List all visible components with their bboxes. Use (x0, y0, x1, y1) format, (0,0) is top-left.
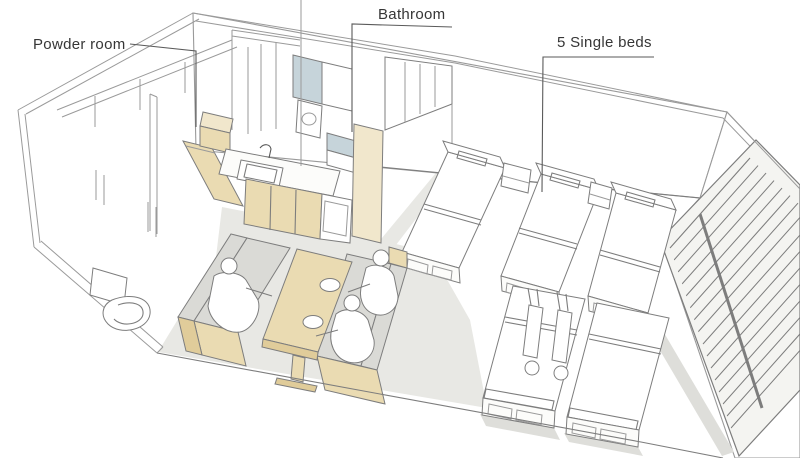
bed-5 (566, 303, 669, 447)
label-single-beds: 5 Single beds (557, 34, 652, 51)
plate (303, 316, 323, 329)
bathroom-partition (322, 62, 352, 111)
entry-door-jambs (96, 170, 156, 237)
person-right-top-head (373, 250, 389, 266)
bed-5-mattress (567, 303, 669, 430)
shower-glass-panel (293, 55, 322, 104)
plate (320, 279, 340, 292)
dining-area (178, 234, 407, 404)
person-right-bottom-head (344, 295, 360, 311)
west-wall-left-edge (18, 110, 40, 247)
bed-2-mattress (501, 174, 599, 292)
west-wall-top-inner (26, 19, 199, 114)
person-lying-2-head (554, 366, 568, 380)
west-wall-top-outer (18, 13, 193, 110)
sketch-svg: Powder room Bathroom 5 Single beds (0, 0, 800, 458)
apartment-sketch: Powder room Bathroom 5 Single beds (0, 0, 800, 458)
bed-3-mattress (588, 193, 676, 313)
person-lying-1-head (525, 361, 539, 375)
label-bathroom: Bathroom (378, 6, 445, 23)
divider-wood-panel (352, 124, 383, 243)
person-left-head (221, 258, 237, 274)
person-right-top-body (361, 265, 399, 315)
label-powder-room: Powder room (33, 36, 126, 53)
powder-room-beam-posts (95, 62, 185, 127)
washing-machine (296, 100, 322, 138)
